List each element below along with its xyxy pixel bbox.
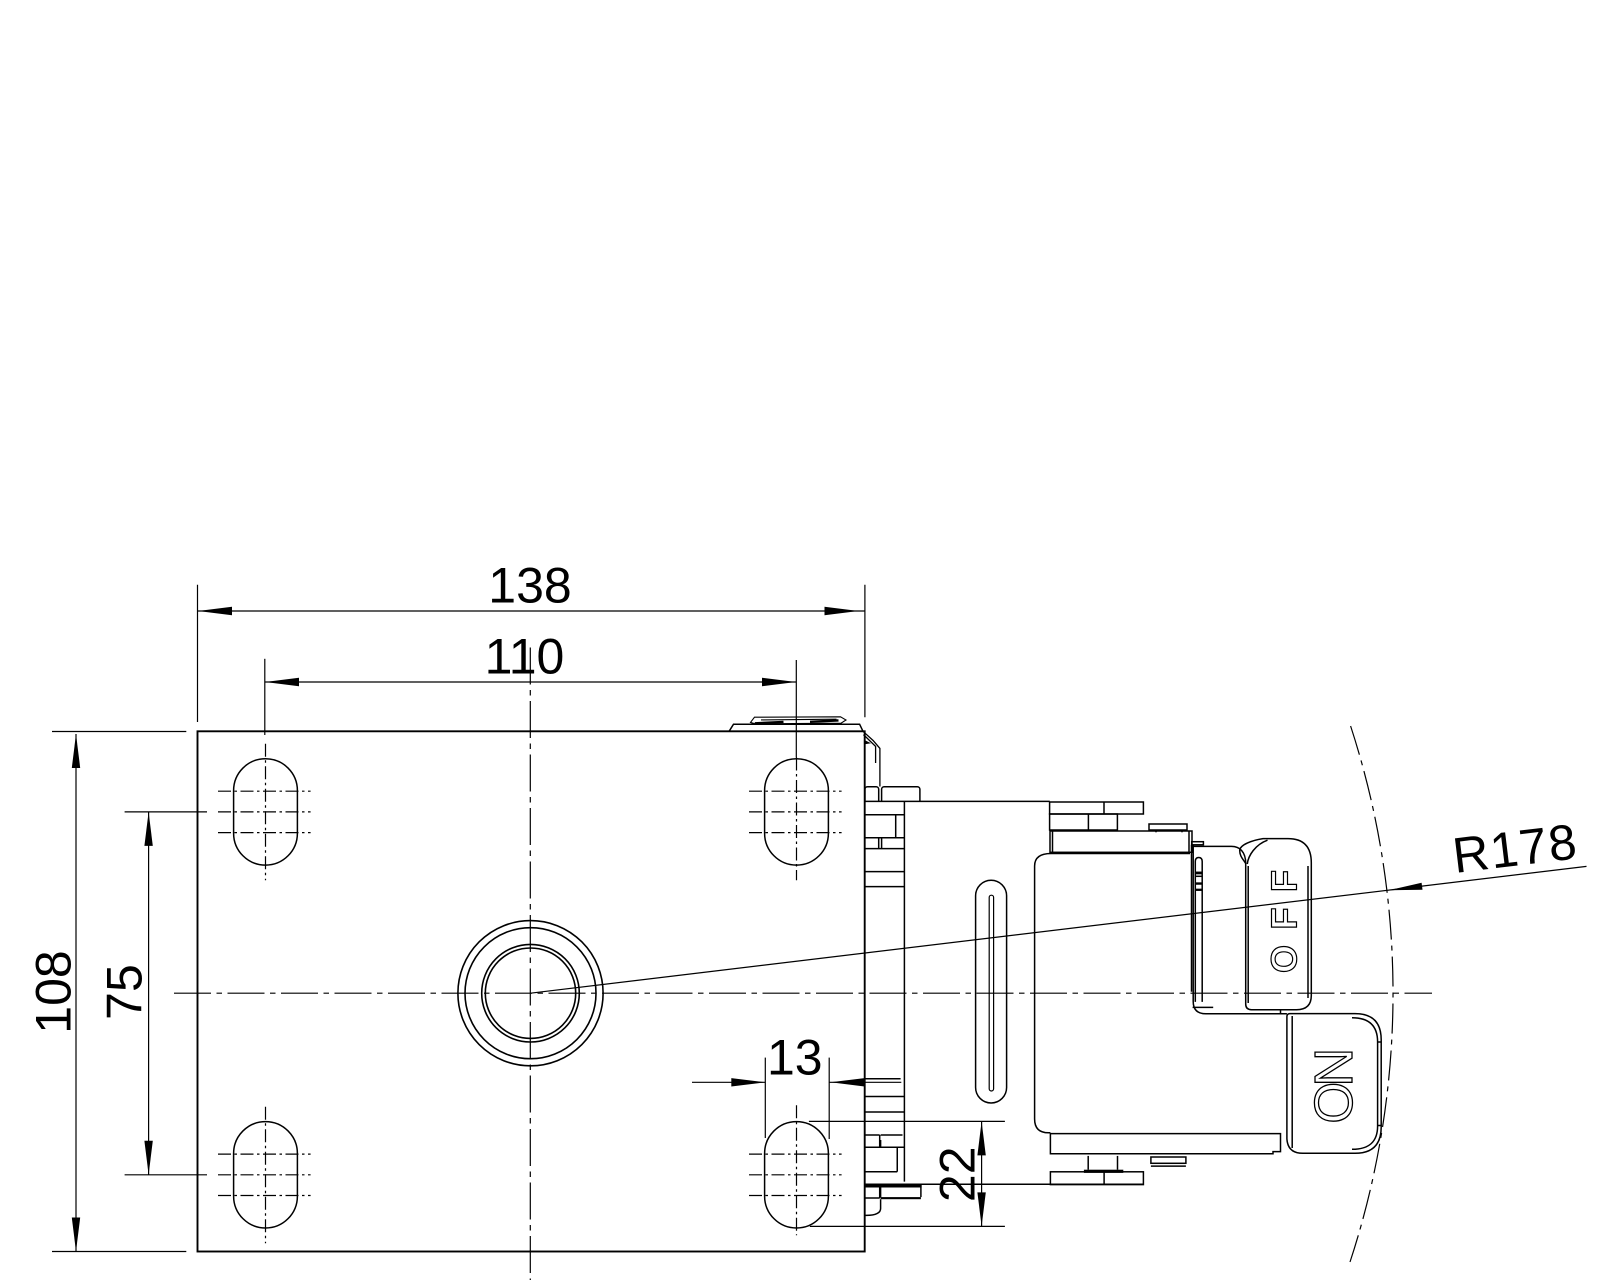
svg-text:ON: ON (1304, 1048, 1364, 1124)
svg-text:13: 13 (767, 1030, 823, 1086)
svg-text:110: 110 (485, 629, 565, 685)
svg-text:22: 22 (930, 1146, 986, 1202)
svg-text:75: 75 (97, 964, 153, 1020)
svg-text:OFF: OFF (1264, 870, 1305, 973)
svg-text:138: 138 (488, 557, 571, 613)
svg-text:108: 108 (26, 950, 82, 1033)
svg-text:R178: R178 (1450, 813, 1581, 884)
